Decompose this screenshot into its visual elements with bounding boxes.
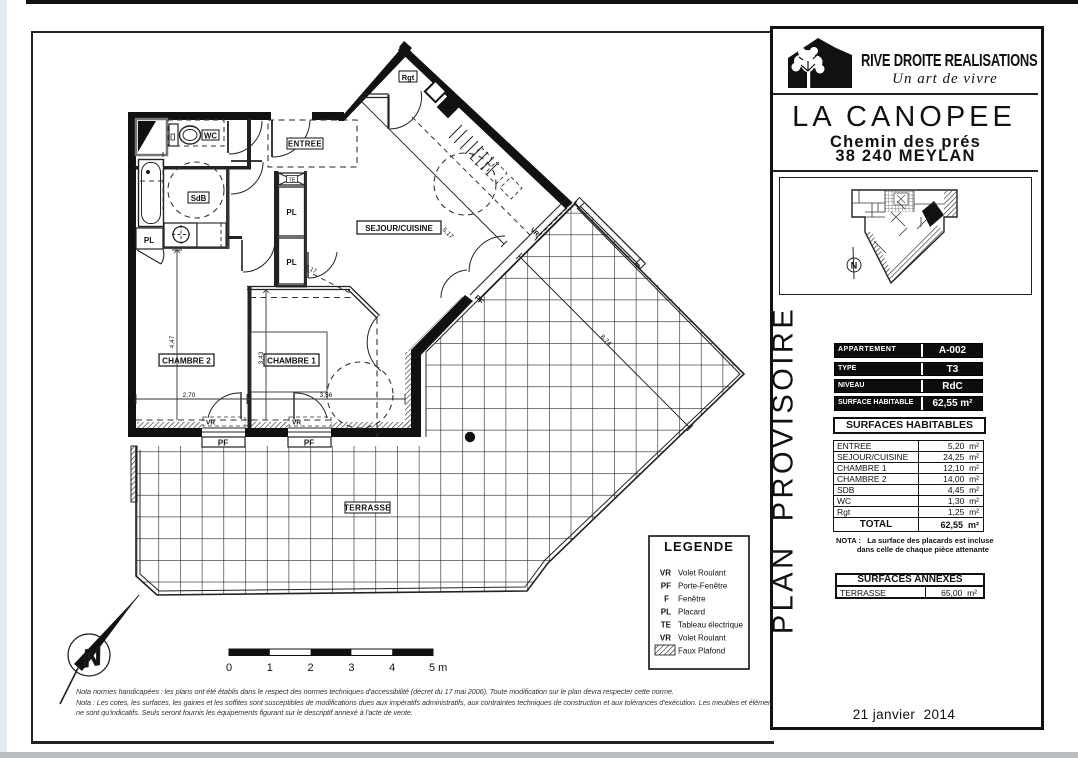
- svg-text:Rgt: Rgt: [402, 73, 415, 82]
- svg-text:LEGENDE: LEGENDE: [664, 539, 734, 554]
- svg-text:3: 3: [348, 662, 354, 674]
- svg-text:PL: PL: [661, 608, 671, 617]
- svg-text:TERRASSE: TERRASSE: [344, 504, 391, 513]
- svg-text:ne sont qu'indicatifs. Seuls s: ne sont qu'indicatifs. Seuls seront four…: [76, 708, 413, 717]
- svg-text:VR: VR: [660, 569, 671, 578]
- svg-text:VR: VR: [292, 420, 301, 427]
- svg-text:SdB: SdB: [191, 194, 207, 203]
- svg-text:4,47: 4,47: [169, 335, 176, 348]
- svg-text:3,56: 3,56: [320, 392, 333, 399]
- svg-text:N: N: [851, 261, 858, 271]
- svg-text:Placard: Placard: [678, 608, 705, 617]
- svg-text:Fenêtre: Fenêtre: [678, 595, 706, 604]
- svg-text:TE: TE: [288, 178, 295, 184]
- svg-text:5 m: 5 m: [429, 662, 447, 674]
- svg-text:Porte-Fenêtre: Porte-Fenêtre: [678, 582, 728, 591]
- svg-text:PL: PL: [144, 236, 154, 245]
- svg-text:VR: VR: [206, 420, 215, 427]
- svg-text:TE: TE: [661, 621, 672, 630]
- svg-text:F: F: [664, 595, 669, 604]
- svg-text:PF: PF: [304, 439, 314, 448]
- svg-text:5,17: 5,17: [441, 226, 455, 240]
- svg-text:N: N: [81, 642, 105, 673]
- svg-text:0: 0: [226, 662, 232, 674]
- svg-text:4: 4: [389, 662, 395, 674]
- svg-text:PF: PF: [661, 582, 671, 591]
- svg-text:Faux Plafond: Faux Plafond: [678, 647, 725, 656]
- svg-text:2: 2: [308, 662, 314, 674]
- svg-text:PL: PL: [286, 258, 296, 267]
- svg-text:VR: VR: [660, 634, 671, 643]
- svg-text:Nota normes handicapées : les: Nota normes handicapées : les plans ont …: [76, 687, 674, 696]
- svg-text:CHAMBRE 2: CHAMBRE 2: [162, 357, 211, 366]
- svg-text:1: 1: [267, 662, 273, 674]
- svg-text:Tableau électrique: Tableau électrique: [678, 621, 743, 630]
- svg-text:PL: PL: [286, 208, 296, 217]
- svg-text:CHAMBRE 1: CHAMBRE 1: [267, 357, 316, 366]
- svg-text:3,43: 3,43: [258, 351, 265, 364]
- svg-text:WC: WC: [204, 131, 217, 140]
- svg-text:Volet Roulant: Volet Roulant: [678, 634, 726, 643]
- svg-text:PF: PF: [218, 439, 228, 448]
- svg-text:Nota : Les cotes, les surfaces: Nota : Les cotes, les surfaces, les gain…: [76, 698, 772, 707]
- svg-text:2,70: 2,70: [183, 392, 196, 399]
- svg-text:ENTREE: ENTREE: [288, 140, 322, 149]
- svg-text:Volet Roulant: Volet Roulant: [678, 569, 726, 578]
- svg-text:SEJOUR/CUISINE: SEJOUR/CUISINE: [365, 224, 433, 233]
